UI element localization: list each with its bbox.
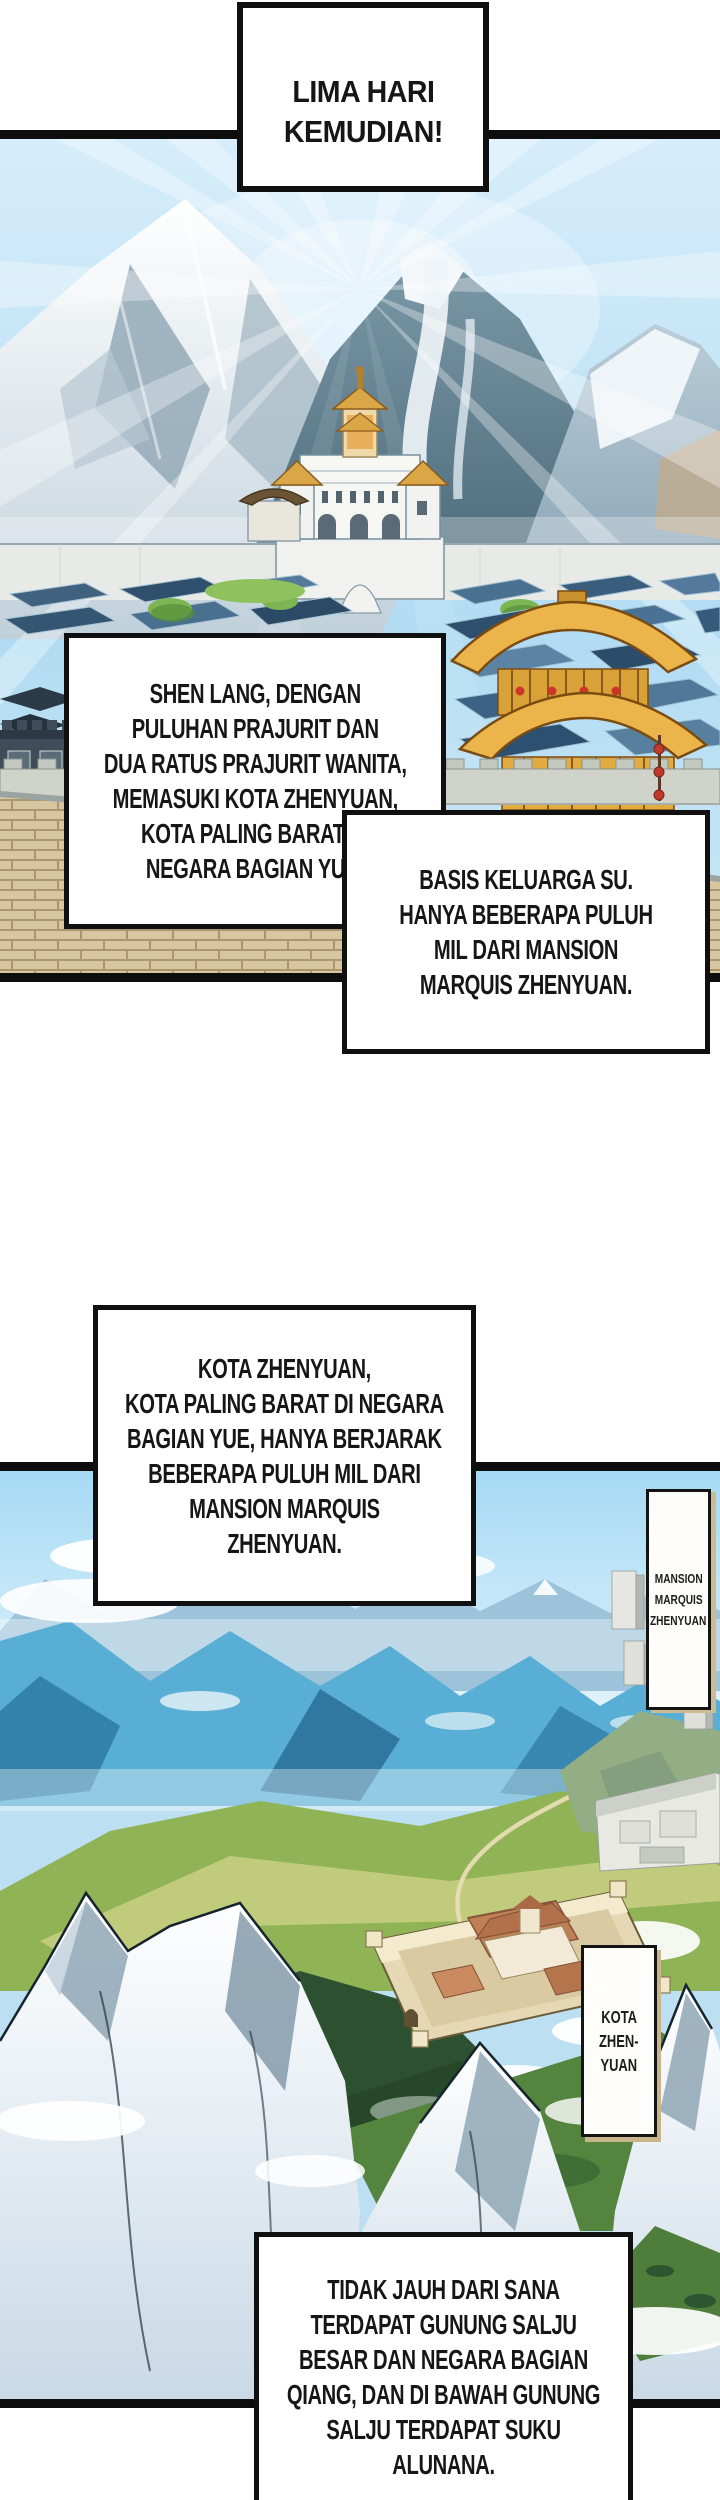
caption-line: KOTA PALING BARAT DI NEGARA — [125, 1386, 444, 1421]
caption-narration-kota-zhenyuan-text: KOTA ZHENYUAN, KOTA PALING BARAT DI NEGA… — [125, 1351, 444, 1561]
caption-line: QIANG, DAN DI BAWAH GUNUNG — [287, 2377, 600, 2412]
caption-line: DUA RATUS PRAJURIT WANITA, — [104, 746, 407, 781]
caption-narration-gunung-salju-text: TIDAK JAUH DARI SANA TERDAPAT GUNUNG SAL… — [287, 2272, 600, 2482]
caption-line: SHEN LANG, DENGAN — [104, 676, 407, 711]
caption-time-skip-text: LIMA HARI KEMUDIAN! — [283, 72, 442, 152]
sign-line: ZHEN- — [599, 2029, 639, 2053]
caption-line: ZHENYUAN. — [125, 1526, 444, 1561]
caption-line: MIL DARI MANSION — [399, 932, 652, 967]
sign-line: MARQUIS — [655, 1589, 703, 1610]
caption-line: ALUNANA. — [287, 2447, 600, 2482]
caption-line: HANYA BEBERAPA PULUH — [399, 897, 652, 932]
caption-time-skip: LIMA HARI KEMUDIAN! — [237, 2, 489, 192]
sign-line: KOTA — [601, 2005, 637, 2029]
caption-line: MARQUIS ZHENYUAN. — [399, 967, 652, 1002]
caption-narration-su-family-text: BASIS KELUARGA SU. HANYA BEBERAPA PULUH … — [399, 862, 652, 1002]
caption-line: SALJU TERDAPAT SUKU — [287, 2412, 600, 2447]
sign-line: ZHENYUAN — [650, 1610, 706, 1631]
caption-narration-gunung-salju: TIDAK JAUH DARI SANA TERDAPAT GUNUNG SAL… — [254, 2232, 633, 2500]
caption-line: BESAR DAN NEGARA BAGIAN — [287, 2342, 600, 2377]
sign-mansion-marquis-zhenyuan: MANSION MARQUIS ZHENYUAN — [646, 1489, 711, 1710]
sign-kota-zhenyuan: KOTA ZHEN- YUAN — [581, 1945, 657, 2137]
caption-narration-su-family: BASIS KELUARGA SU. HANYA BEBERAPA PULUH … — [342, 810, 710, 1054]
caption-line: BAGIAN YUE, HANYA BERJARAK — [125, 1421, 444, 1456]
caption-line: LIMA HARI — [283, 72, 442, 112]
sign-line: YUAN — [601, 2053, 638, 2077]
caption-line: BASIS KELUARGA SU. — [399, 862, 652, 897]
caption-line: TIDAK JAUH DARI SANA — [287, 2272, 600, 2307]
caption-line: MANSION MARQUIS — [125, 1491, 444, 1526]
caption-line: BEBERAPA PULUH MIL DARI — [125, 1456, 444, 1491]
comic-page: LIMA HARI KEMUDIAN! SHEN LANG, DENGAN PU… — [0, 0, 720, 2500]
caption-line: KOTA ZHENYUAN, — [125, 1351, 444, 1386]
caption-line: KEMUDIAN! — [283, 112, 442, 152]
caption-line: PULUHAN PRAJURIT DAN — [104, 711, 407, 746]
caption-line: TERDAPAT GUNUNG SALJU — [287, 2307, 600, 2342]
sign-line: MANSION — [655, 1568, 703, 1589]
caption-narration-kota-zhenyuan: KOTA ZHENYUAN, KOTA PALING BARAT DI NEGA… — [93, 1305, 476, 1606]
